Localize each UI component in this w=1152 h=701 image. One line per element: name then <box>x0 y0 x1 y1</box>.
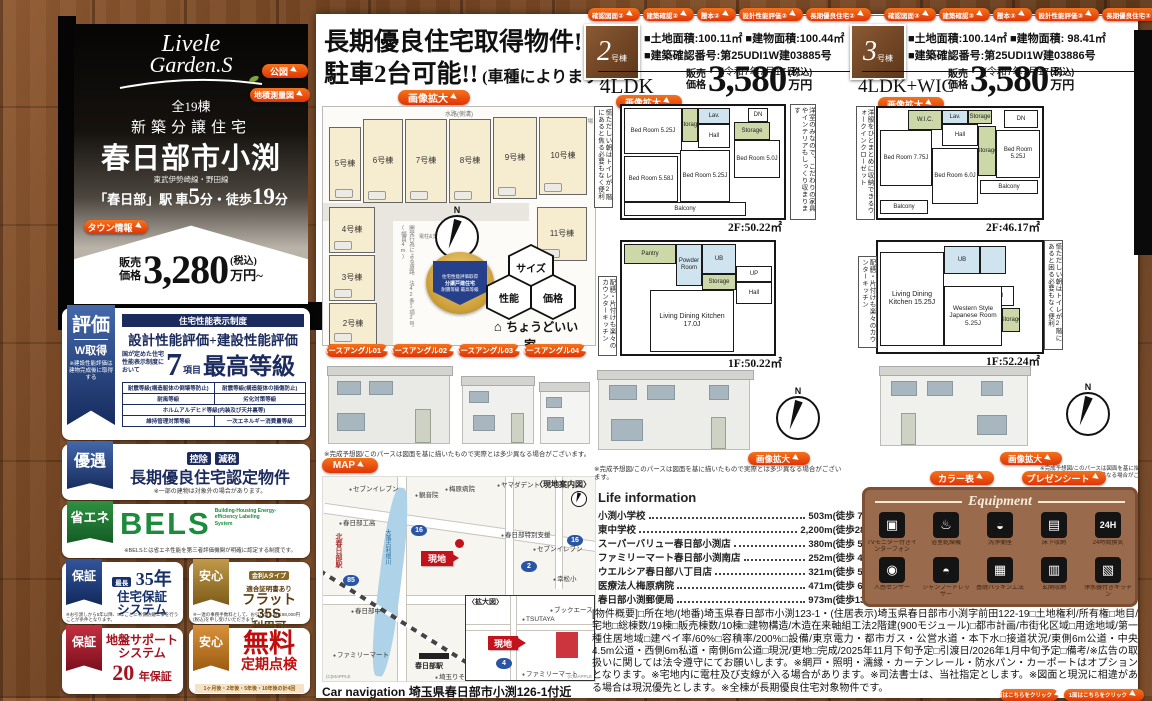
jiban-ribbon: 保証 <box>66 625 102 671</box>
cursor-icon <box>1044 453 1055 463</box>
unit3-plan-1f: Living Dining Kitchen 15.25J UB Hall Wes… <box>876 240 1044 354</box>
inset-site-marker: 現地 <box>488 636 518 650</box>
room: Bed Room 7.75J <box>880 130 932 186</box>
cursor-icon <box>1129 690 1140 700</box>
footer-link-1[interactable]: 1面はこちらをクリック <box>1000 689 1058 701</box>
access-pre: 「春日部」駅 車 <box>94 192 188 207</box>
area-map[interactable]: 大落古利根川 北春日部駅 春日部駅 〈現地案内図〉 16 85 2 16 セブン… <box>322 476 596 682</box>
room: Powder Room <box>676 244 702 286</box>
cert-item: ホルムアルデヒド等級(内装及び天井裏等) <box>122 405 306 416</box>
cursor-icon <box>1092 473 1103 483</box>
medal-line3: 耐震等級 最高等級 <box>441 287 478 293</box>
unit2-number-suffix: 号棟 <box>611 53 627 64</box>
warranty35-content: 最長 35年 住宅保証 システム <box>104 565 180 617</box>
jiban-ribbon-label: 保証 <box>72 633 96 650</box>
flat35-content: 金利Aタイプ 適合証明書あり フラット35S 利用可 <box>231 565 307 633</box>
hex-performance: 性能 <box>486 274 532 320</box>
equipment-item: ▧浄水器付きキッチン <box>1082 557 1134 599</box>
room: W.I.C. <box>908 110 942 130</box>
tab-kenchiku-kakunin-3[interactable]: 建築確認③ <box>939 8 991 21</box>
unit3-price: 販売価格 3,580 (税込)万円 <box>948 58 1074 101</box>
map-inset: 〈拡大図〉 ブックエース TSUTAYA ファミリーマート 現地 4 (C)MA… <box>465 595 595 681</box>
lot-8: 8号棟 <box>449 119 491 203</box>
equipment-row2: ◉人感センサー ◓シャンプードレッサー ▦基礎パッキン工法 ▥玄関収納 ▧浄水器… <box>865 557 1135 599</box>
cursor-icon <box>922 9 933 19</box>
poi-familymart: ファミリーマート <box>333 649 389 659</box>
access-num2: 19 <box>252 184 275 209</box>
inset-title: 〈拡大図〉 <box>468 597 503 607</box>
life-item: 春日部小渕郵便局973m(徒歩13分) <box>598 592 878 606</box>
headline-line1: 長期優良住宅取得物件! <box>324 22 582 58</box>
room: Storage <box>968 110 992 124</box>
center-render-caption: ※完成予想図/このパースは図面を基に描いたもので実際とは多少異なる場合がございま… <box>324 448 594 458</box>
cert-item: 耐震等級(構造躯体の倒壊等防止) <box>122 382 215 394</box>
price-prefix1: 販売 <box>119 257 141 269</box>
warranty35-note: ※お引渡しから5年以降、5年ごとに有償防蟻工事を行うことが条件となります。 <box>66 612 179 623</box>
cert-title: 設計性能評価+建設性能評価 <box>120 329 306 349</box>
unit2-plan-1f: Pantry Powder Room UB Storage UP Hall Li… <box>620 240 776 356</box>
tab-kakunin-zumen-2[interactable]: 確認図面② <box>588 8 640 21</box>
jiban-num: 20 <box>112 660 134 685</box>
tab-tohon-3[interactable]: 謄本③ <box>993 8 1032 21</box>
entrance-storage-icon: ▥ <box>1041 557 1067 583</box>
underfloor-storage-icon: ▤ <box>1041 512 1067 538</box>
room: Balcony <box>980 180 1038 194</box>
lot-6: 6号棟 <box>363 119 403 203</box>
town-info-label: タウン情報 <box>87 221 132 234</box>
unit3-layout: 4LDK+WIC <box>858 76 954 98</box>
lot-7: 7号棟 <box>405 119 447 203</box>
zoom-label: 画像拡大 <box>408 90 448 105</box>
price-value: 3,280 <box>143 246 228 293</box>
inset-site-block <box>556 632 578 658</box>
bath-dryer-icon: ♨ <box>933 512 959 538</box>
map-credit: (C)MAPPLE <box>326 674 351 679</box>
jiban-content: 地盤サポート システム 20 年保証 <box>104 634 180 686</box>
poi-kasukabe-koko: 春日部工高 <box>339 517 376 527</box>
tab-kenchiku-kakunin-2[interactable]: 建築確認② <box>643 8 695 21</box>
room: Western Style Japanese Room 5.25J <box>944 286 1002 346</box>
yugu-title: 長期優良住宅認定物件 <box>112 464 308 488</box>
cert-ribbon-note: ※建設性能評価は建物完成後に取得する <box>67 358 115 385</box>
washlet-icon: ◒ <box>987 512 1013 538</box>
room: UB <box>944 246 980 274</box>
site-marker-pointer <box>451 553 464 563</box>
tab-kakunin-zumen-3[interactable]: 確認図面③ <box>884 8 936 21</box>
ventilation-24h-icon: 24H <box>1095 512 1121 538</box>
room: Balcony <box>880 200 928 214</box>
bels-subtitle: Building-Housing Energy-efficiency Label… <box>215 508 279 527</box>
room: Lav. <box>698 108 730 124</box>
jiban-title2: システム <box>104 647 180 660</box>
life-item: 小渕小学校503m(徒歩 7 分) <box>598 508 878 522</box>
tab-tohon-2[interactable]: 謄本② <box>697 8 736 21</box>
lot-9: 9号棟 <box>493 117 537 199</box>
property-overview: [物件概要]□所在地/(地番)埼玉県春日部市小渕123-1・(住居表示)埼玉県春… <box>592 609 1138 695</box>
unit2-compass: N <box>776 396 820 440</box>
cert-count: 7 <box>166 348 182 380</box>
house-render <box>328 372 450 444</box>
room: Bed Room 5.0J <box>734 140 780 178</box>
unit2-number: 2 <box>597 36 611 68</box>
poi-kasukabe-chu: 春日部中 <box>351 605 381 615</box>
room: Living Dining Kitchen 15.25J <box>880 252 944 346</box>
teiki-ribbon: 安心 <box>193 625 229 671</box>
lot-10: 10号棟 <box>539 117 587 195</box>
chiseki-button[interactable]: 地積測量図 <box>250 88 310 102</box>
equipment-item: ♨浴室乾燥機 <box>920 512 972 554</box>
cert-count-unit: 項目 <box>183 363 201 376</box>
cursor-icon <box>857 9 868 19</box>
car-navigation-label: Car navigation <box>322 685 405 699</box>
bels-title: BELS <box>120 508 211 539</box>
equipment-item: ▤床下収納 <box>1028 512 1080 554</box>
equipment-title: Equipment <box>968 494 1032 510</box>
room: Lav. <box>942 110 968 124</box>
cursor-icon <box>789 9 800 19</box>
teiki-note: 1ヶ月後・2年後・5年後・10年後の計4回 <box>195 684 304 693</box>
yugu-note: ※一部の建物は対象外の場合があります。 <box>112 486 308 495</box>
cursor-icon <box>1018 9 1029 19</box>
cursor-icon <box>722 9 733 19</box>
room: DN <box>748 108 768 122</box>
cert-item: 維持管理対策等級 <box>122 416 215 427</box>
access-mid: 分・徒歩 <box>200 192 252 207</box>
center-render-area <box>322 360 594 446</box>
room: Storage <box>1002 308 1020 332</box>
presentation-sheet-button[interactable]: プレゼンシート <box>1022 471 1106 485</box>
poi-umehara-hospital: 梅原病院 <box>445 483 475 493</box>
room: Hall <box>736 282 772 304</box>
life-information: Life information 小渕小学校503m(徒歩 7 分) 東中学校2… <box>598 490 878 606</box>
lot-5: 5号棟 <box>329 127 361 201</box>
poi-komatsu-sho: 幸松小 <box>553 573 577 583</box>
flat35-ribbon-label: 安心 <box>199 567 223 584</box>
cursor-icon <box>357 460 368 470</box>
cert-item: 劣化対策等級 <box>215 394 307 405</box>
award-medal-icon: 住宅性能評価取得 分譲戸建住宅 耐震等級 最高等級 <box>426 252 494 314</box>
unit2-note-left-2f: 慌ただしい朝はトイレが2階にあると焦る必要もなく便利 <box>594 106 613 208</box>
unit2-price: 販売価格 3,580 (税込)万円 <box>686 58 812 101</box>
room: Hall <box>942 124 978 146</box>
siteplan-road-note: 開発行為による道路 法42条1項2号(幅員4m) <box>399 225 415 335</box>
route-shield-85: 85 <box>343 575 359 586</box>
map-label: MAP <box>333 460 355 471</box>
river-label: 大落古利根川 <box>383 529 392 565</box>
water-purifier-kitchen-icon: ▧ <box>1095 557 1121 583</box>
unit3-building-area: ■建物面積: 98.41㎡ <box>1010 33 1106 45</box>
cert-ribbon-label: 評価 <box>72 310 110 337</box>
logo-swoosh-icon <box>116 74 266 92</box>
cursor-icon <box>1085 9 1096 19</box>
room: Bed Room 5.25J <box>624 108 682 154</box>
unit2-price-value: 3,580 <box>708 58 786 101</box>
jiban-years: 年保証 <box>139 671 172 683</box>
teiki-content: 無料 定期点検 <box>231 630 307 672</box>
foundation-packing-icon: ▦ <box>987 557 1013 583</box>
hex-price: 価格 <box>530 274 576 320</box>
equipment-item: ▣TVモニター付きインターフォン <box>866 512 918 554</box>
jiban-badge-card: 保証 地盤サポート システム 20 年保証 <box>62 628 183 694</box>
warranty35-tag: 最長 <box>112 577 131 587</box>
room: Balcony <box>624 202 746 216</box>
cursor-icon <box>296 90 307 100</box>
medal-line2: 分譲戸建住宅 <box>445 280 475 287</box>
unit3-price-value: 3,580 <box>970 58 1048 101</box>
unit2-render-zoom-button[interactable]: 画像拡大 <box>748 452 810 465</box>
poi-tokubetsu-shien: 春日部特別支援 <box>501 529 551 539</box>
unit2-2f-area: 2F:50.22㎡ <box>680 219 782 235</box>
inset-site-pointer <box>518 638 531 648</box>
equipment-item: 24H24時間換気 <box>1082 512 1134 554</box>
access-num1: 5 <box>188 184 200 209</box>
unit3-number-suffix: 号棟 <box>877 53 893 64</box>
unit3-render <box>876 362 1056 448</box>
lot-2: 2号棟 <box>329 303 377 345</box>
cert-badge-card: 評価 W取得 ※建設性能評価は建物完成後に取得する 住宅性能表示制度 設計性能評… <box>62 308 310 440</box>
map-button[interactable]: MAP <box>322 458 378 473</box>
life-item: ファミリーマート春日部小渕南店252m(徒歩 4 分) <box>598 550 878 564</box>
bels-ribbon-label: 省エネ <box>70 507 109 526</box>
cursor-icon <box>450 92 461 102</box>
unit2-plan-2f: Bed Room 5.25J Storage Lav. Hall DN Stor… <box>620 104 786 220</box>
pers-angle-02-button[interactable]: パースアングル02 <box>392 344 454 357</box>
room: Bed Room 5.25J <box>680 150 730 202</box>
warranty35-ribbon: 保証 <box>66 559 102 605</box>
room: Hall <box>698 124 730 148</box>
cert-lead: 国が定めた住宅性能表示制度において <box>122 352 166 375</box>
house-render <box>462 382 534 444</box>
cursor-icon <box>626 9 637 19</box>
unit2-note-left-1f: 配膳・片付けも楽々のカウンターキッチン <box>598 276 617 356</box>
lot-4: 4号棟 <box>329 207 375 253</box>
warranty35-badge-card: 保証 最長 35年 住宅保証 システム ※お引渡しから5年以降、5年ごとに有償防… <box>62 562 183 624</box>
teiki-title: 無料 <box>231 630 307 657</box>
cert-ribbon-sub: W取得 <box>75 342 107 358</box>
inset-credit: (C)MAPPLE <box>567 674 592 679</box>
location-title: 春日部市小渕 <box>74 135 308 177</box>
north-label: N <box>454 205 461 215</box>
car-navigation-address: 埼玉県春日部市小渕126-1付近 <box>409 685 572 699</box>
cert-ribbon: 評価 W取得 ※建設性能評価は建物完成後に取得する <box>67 305 115 425</box>
headline-line2-main: 駐車2台可能!! <box>324 61 478 88</box>
category: 新築分譲住宅 <box>74 116 308 137</box>
life-item: ウエルシア春日部八丁目店321m(徒歩 5 分) <box>598 564 878 578</box>
equipment-item: ◓シャンプードレッサー <box>920 557 972 599</box>
motion-sensor-icon: ◉ <box>879 557 905 583</box>
flat35-badge-card: 安心 金利Aタイプ 適合証明書あり フラット35S 利用可 ※一連の事務手数料と… <box>189 562 310 624</box>
access-line: 「春日部」駅 車5分・徒歩19分 <box>74 184 308 210</box>
map-title: 〈現地案内図〉 <box>535 479 591 490</box>
brand-price: 販売 価格 3,280 (税込) 万円~ <box>74 246 308 293</box>
unit3-number: 3 <box>863 36 877 68</box>
bels-note: ※BELSとは省エネ性能を第三者評価機関が明確に認定する制度です。 <box>114 546 306 554</box>
room: Bed Room 6.0J <box>932 148 978 204</box>
yugu-badge-card: 優遇 控除 減税 長期優良住宅認定物件 ※一部の建物は対象外の場合があります。 <box>62 444 310 500</box>
cursor-icon <box>792 453 803 463</box>
unit2-building-area: ■建物面積:100.44㎡ <box>745 33 844 45</box>
flat35-ribbon: 安心 <box>193 559 229 605</box>
bels-ribbon: 省エネ <box>67 501 113 543</box>
yugu-ribbon: 優遇 <box>67 441 113 489</box>
poi-seveneleven: セブンイレブン <box>349 483 399 493</box>
equipment-item: ▦基礎パッキン工法 <box>974 557 1026 599</box>
room: Storage <box>978 126 996 176</box>
footer-link-2[interactable]: 1面はこちらをクリック <box>1064 689 1144 701</box>
route-shield-16: 16 <box>411 525 427 536</box>
equipment-item: ◒洗浄便座 <box>974 512 1026 554</box>
price-prefix2: 価格 <box>119 270 141 282</box>
unit2-note-right-2f: 洋室のみなので、こだわりの家具やインテリアもしっくり収まります <box>790 104 816 220</box>
pers-angle-03-button[interactable]: パースアングル03 <box>458 344 520 357</box>
life-item: スーパーバリュー春日部小渕店380m(徒歩 5 分) <box>598 536 878 550</box>
bels-badge-card: 省エネ BELS Building-Housing Energy-efficie… <box>62 504 310 558</box>
poi-kannonin: 観音院 <box>415 489 439 499</box>
price-unit: 万円~ <box>230 268 263 283</box>
map-compass <box>571 491 587 507</box>
house-render <box>540 388 590 444</box>
teiki-badge-card: 安心 無料 定期点検 1ヶ月後・2年後・5年後・10年後の計4回 <box>189 628 310 694</box>
site-marker: 現地 <box>421 551 453 566</box>
unit3-note-left-2f: 洋服をひとまとめに収納できるウォークインクローゼット <box>856 106 875 220</box>
cert-item: 一次エネルギー消費量等級 <box>215 416 307 427</box>
route-shield-2: 2 <box>521 561 537 572</box>
kozu-label: 公図 <box>270 65 288 78</box>
cursor-icon <box>135 222 146 232</box>
cert-header: 住宅性能表示制度 <box>122 314 304 327</box>
flat35-note: ※一連の事務手数料として、お引き渡し時に88,000円(税込)を申し受けいただき… <box>193 612 306 623</box>
equipment-item: ◉人感センサー <box>866 557 918 599</box>
cert-item: 耐風等級 <box>122 394 215 405</box>
station-kitakasukabe: 北春日部駅 <box>333 533 343 568</box>
tab-sekkei-hyoka-2[interactable]: 設計性能評価② <box>739 8 804 21</box>
room: UB <box>702 244 736 274</box>
unit3-plan-2f: W.I.C. Lav. Storage DN Hall Bed Room 7.7… <box>876 106 1044 220</box>
kozu-button[interactable]: 公図 <box>262 64 308 78</box>
room: UP <box>736 266 772 282</box>
unit2-land-area: ■土地面積:100.11㎡ <box>644 33 742 45</box>
room: Living Dining Kitchen 17.0J <box>650 290 734 352</box>
unit3-tabs: 確認図面③ 建築確認③ 謄本③ 設計性能評価③ 長期優良住宅③ <box>884 8 1152 21</box>
equipment-panel: Equipment ▣TVモニター付きインターフォン ♨浴室乾燥機 ◒洗浄便座 … <box>862 487 1138 607</box>
color-chart-button[interactable]: カラー表 <box>930 471 994 485</box>
teiki-ribbon-label: 安心 <box>199 633 223 650</box>
warranty35-ribbon-label: 保証 <box>72 567 96 584</box>
price-tax: (税込) <box>230 256 257 267</box>
room: DN <box>1004 110 1038 128</box>
room: Storage <box>682 108 698 142</box>
cursor-icon <box>976 9 987 19</box>
unit3-note-right-1f: 慌ただしい朝はトイレが2階にあると困る必要もなく便利 <box>1044 240 1063 350</box>
intercom-icon: ▣ <box>879 512 905 538</box>
warranty35-years: 35年 <box>136 569 172 589</box>
tab-choki-yuryo-2[interactable]: 長期優良住宅② <box>806 8 871 21</box>
cert-items-grid: 耐震等級(構造躯体の倒壊等防止) 耐震等級(構造躯体の損傷防止) 耐風等級 劣化… <box>122 382 306 427</box>
headline-line2: 駐車2台可能!! (車種によります) <box>324 54 605 90</box>
chiseki-label: 地積測量図 <box>254 90 294 101</box>
station-shape <box>419 653 449 659</box>
teiki-sub: 定期点検 <box>231 657 307 672</box>
room: Bed Room 5.58J <box>624 156 678 202</box>
cursor-icon <box>976 473 987 483</box>
yugu-ribbon-label: 優遇 <box>74 447 106 471</box>
room: Bed Room 5.25J <box>996 130 1040 178</box>
pers-angle-04-button[interactable]: パースアングル04 <box>524 344 586 357</box>
unit2-render-caption: ※完成予想図/このパースは図面を基に描いたもので実際とは多少異なる場合がございま… <box>594 466 844 483</box>
unit3-note-left-1f: 配膳・片付けも楽々のカウンターキッチン <box>858 256 877 348</box>
town-info-button[interactable]: タウン情報 <box>84 220 148 234</box>
cert-grade-row: 国が定めた住宅性能表示制度において 7 項目 最高等級 <box>122 347 306 381</box>
cert-grade: 最高等級 <box>203 347 295 381</box>
room <box>980 246 1006 274</box>
station-kasukabe: 春日部駅 <box>415 661 443 671</box>
access-suf: 分 <box>275 192 288 207</box>
cert-item: 耐震等級(構造躯体の損傷防止) <box>215 382 307 394</box>
room: Storage <box>734 122 770 140</box>
unit2-tabs: 確認図面② 建築確認② 謄本② 設計性能評価② 長期優良住宅② <box>588 8 880 21</box>
cursor-icon <box>290 66 301 76</box>
cursor-icon <box>680 9 691 19</box>
equipment-item: ▥玄関収納 <box>1028 557 1080 599</box>
equipment-row1: ▣TVモニター付きインターフォン ♨浴室乾燥機 ◒洗浄便座 ▤床下収納 24H2… <box>865 512 1135 554</box>
poi-bookace: ブックエース <box>550 604 593 614</box>
unit3-2f-area: 2F:46.17㎡ <box>936 219 1040 235</box>
lot-3: 3号棟 <box>329 255 375 301</box>
unit2-render <box>594 366 780 452</box>
poi-yamada: ヤマダデント <box>497 479 540 489</box>
room: Storage <box>702 274 736 290</box>
siteplan-zoom-button[interactable]: 画像拡大 <box>398 90 470 105</box>
poi-seveneleven2: セブンイレブン <box>533 543 583 553</box>
poi-tsutaya: TSUTAYA <box>522 616 555 623</box>
bels-title-row: BELS Building-Housing Energy-efficiency … <box>120 508 279 539</box>
route-shield-4: 4 <box>496 658 512 669</box>
flat35-tag: 金利Aタイプ <box>249 571 289 580</box>
tab-choki-yuryo-3[interactable]: 長期優良住宅③ <box>1102 8 1152 21</box>
life-title: Life information <box>598 490 878 505</box>
room: Pantry <box>624 244 676 264</box>
shampoo-dresser-icon: ◓ <box>933 557 959 583</box>
unit3-land-area: ■土地面積:100.14㎡ <box>908 33 1007 45</box>
pers-angle-01-button[interactable]: パースアングル01 <box>326 344 388 357</box>
life-item: 医療法人梅原病院471m(徒歩 6 分) <box>598 578 878 592</box>
unit3-render-zoom-button[interactable]: 画像拡大 <box>1000 452 1062 465</box>
car-navigation: Car navigation 埼玉県春日部市小渕126-1付近 <box>322 683 571 700</box>
unit3-compass: N <box>1066 392 1110 436</box>
house-icon: ⌂ <box>494 319 502 334</box>
tab-sekkei-hyoka-3[interactable]: 設計性能評価③ <box>1035 8 1100 21</box>
life-item: 東中学校2,200m(徒歩28分) <box>598 522 878 536</box>
site-dot <box>455 539 464 548</box>
siteplan-road-v <box>375 203 393 345</box>
